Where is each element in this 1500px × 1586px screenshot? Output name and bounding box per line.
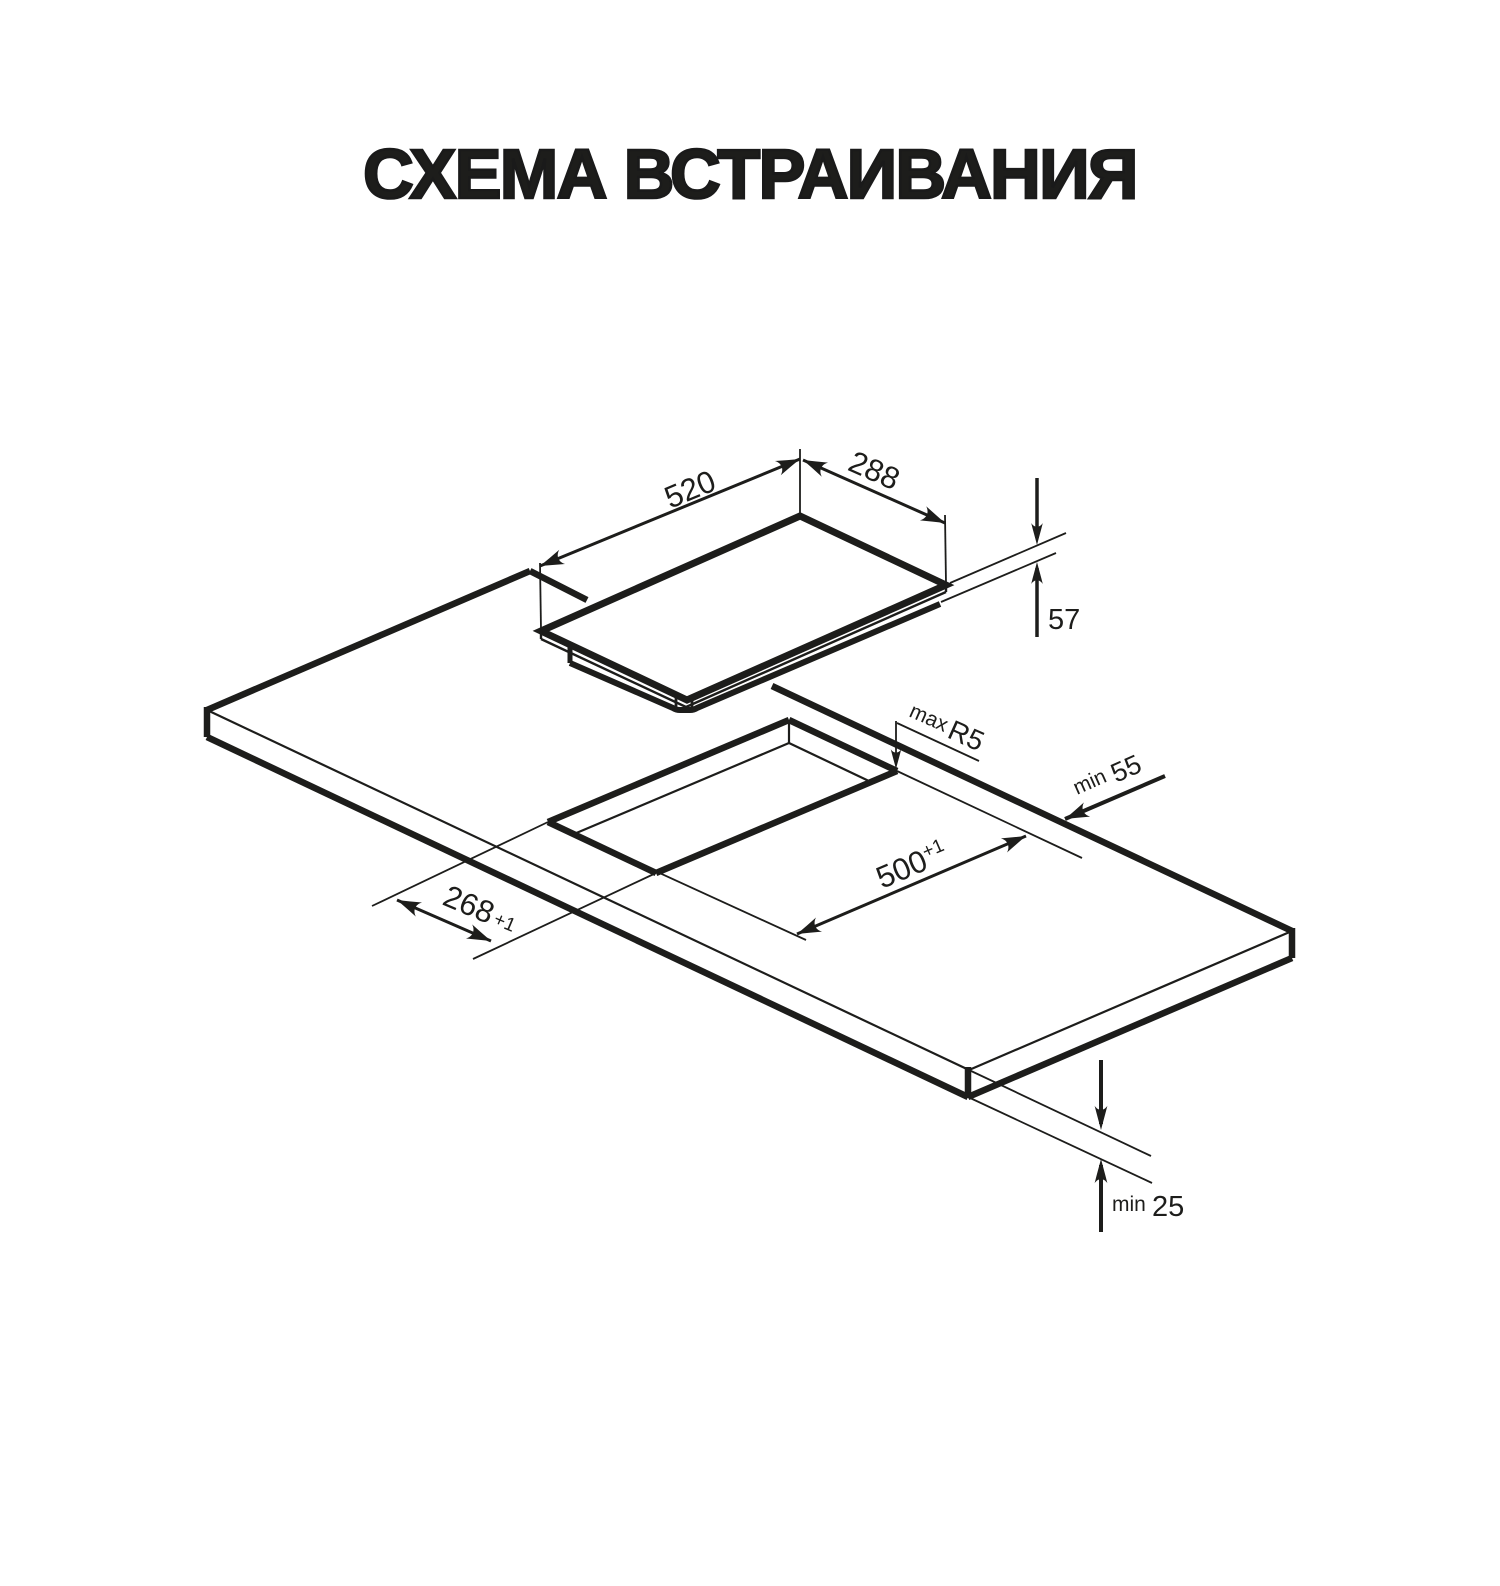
svg-text:+1: +1: [490, 909, 518, 937]
svg-text:СХЕМА ВСТРАИВАНИЯ: СХЕМА ВСТРАИВАНИЯ: [363, 135, 1137, 213]
svg-text:520: 520: [659, 463, 720, 515]
svg-text:25: 25: [1152, 1191, 1184, 1223]
svg-text:55: 55: [1106, 749, 1146, 789]
svg-text:min: min: [1070, 765, 1110, 800]
svg-text:min: min: [1112, 1193, 1146, 1216]
svg-text:288: 288: [844, 444, 905, 497]
svg-text:R5: R5: [944, 714, 989, 757]
svg-text:57: 57: [1048, 604, 1080, 636]
